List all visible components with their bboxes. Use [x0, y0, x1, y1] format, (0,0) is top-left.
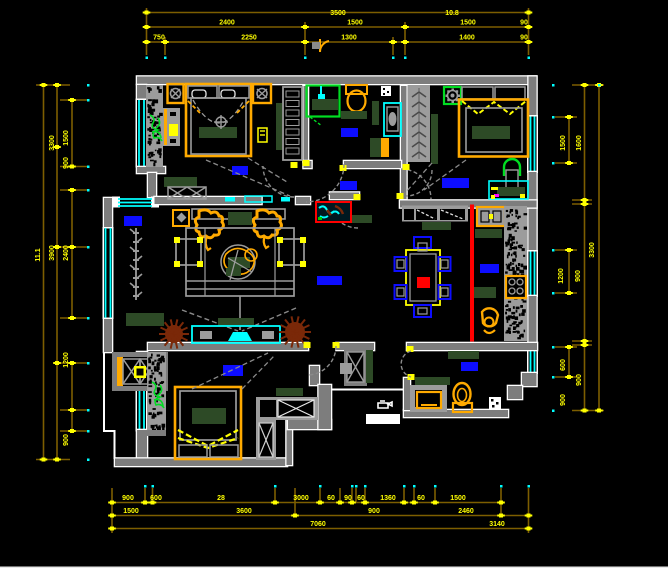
svg-text:3500: 3500 — [330, 10, 346, 17]
svg-text:1500: 1500 — [560, 135, 567, 151]
svg-text:1500: 1500 — [63, 130, 70, 146]
svg-text:2400: 2400 — [219, 20, 235, 27]
svg-text:900: 900 — [63, 434, 70, 446]
svg-text:90: 90 — [520, 35, 528, 42]
svg-text:1500: 1500 — [460, 20, 476, 27]
svg-text:1600: 1600 — [576, 135, 583, 151]
svg-text:60: 60 — [327, 495, 335, 502]
svg-text:600: 600 — [560, 359, 567, 371]
svg-text:900: 900 — [576, 374, 583, 386]
svg-text:60: 60 — [357, 495, 365, 502]
svg-text:2460: 2460 — [458, 508, 474, 515]
svg-text:3140: 3140 — [489, 521, 505, 528]
svg-text:1500: 1500 — [450, 495, 466, 502]
svg-text:1300: 1300 — [341, 35, 357, 42]
svg-text:1500: 1500 — [123, 508, 139, 515]
svg-text:90: 90 — [344, 495, 352, 502]
svg-text:1400: 1400 — [459, 35, 475, 42]
svg-text:900: 900 — [122, 495, 134, 502]
svg-text:3000: 3000 — [293, 495, 309, 502]
svg-text:900: 900 — [368, 508, 380, 515]
svg-text:1200: 1200 — [63, 352, 70, 368]
svg-text:2250: 2250 — [241, 35, 257, 42]
svg-text:3600: 3600 — [236, 508, 252, 515]
svg-text:3300: 3300 — [49, 135, 56, 151]
svg-text:3900: 3900 — [49, 245, 56, 261]
svg-text:900: 900 — [560, 394, 567, 406]
svg-text:60: 60 — [417, 495, 425, 502]
svg-text:750: 750 — [153, 35, 165, 42]
svg-text:28: 28 — [217, 495, 225, 502]
svg-text:11.1: 11.1 — [35, 248, 42, 261]
svg-text:90: 90 — [520, 20, 528, 27]
svg-text:1200: 1200 — [558, 268, 565, 284]
svg-text:600: 600 — [150, 495, 162, 502]
svg-text:900: 900 — [63, 157, 70, 169]
svg-text:1500: 1500 — [347, 20, 363, 27]
svg-text:3300: 3300 — [589, 242, 596, 258]
svg-text:2400: 2400 — [63, 245, 70, 261]
svg-text:1360: 1360 — [380, 495, 396, 502]
svg-text:900: 900 — [575, 270, 582, 282]
svg-text:10.8: 10.8 — [445, 10, 459, 17]
svg-text:7060: 7060 — [310, 521, 326, 528]
